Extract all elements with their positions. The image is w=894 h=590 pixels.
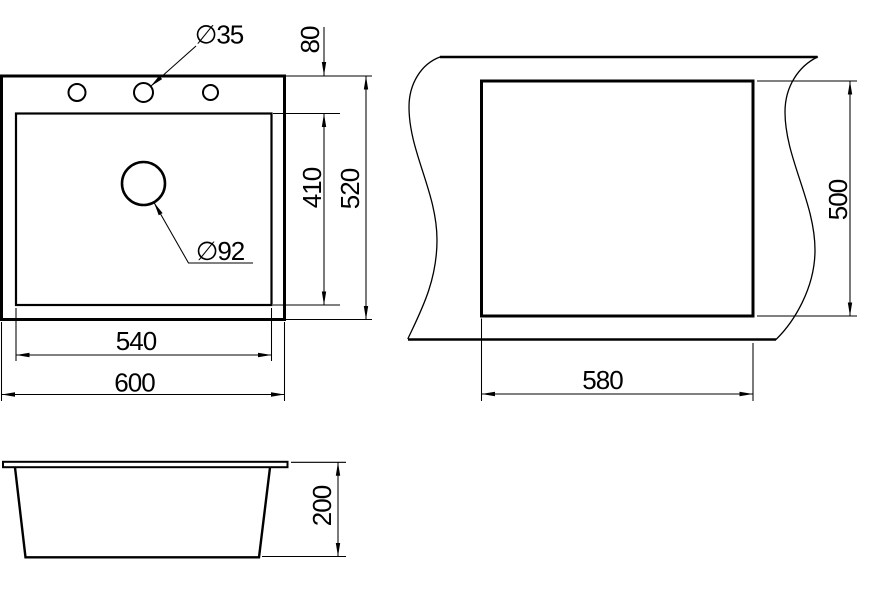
top-view	[2, 76, 285, 320]
sink-rim-profile	[3, 462, 288, 467]
tap-hole-right	[203, 85, 218, 100]
dim-label-600: 600	[114, 368, 155, 398]
side-view	[3, 462, 288, 558]
sink-body-profile	[15, 468, 270, 558]
dim-label-540: 540	[116, 326, 157, 356]
dim-label-drain-hole: ∅92	[196, 236, 245, 266]
extension-lines	[2, 76, 373, 401]
extension-lines	[482, 81, 858, 401]
dim-label-500: 500	[823, 179, 853, 220]
tap-hole-left	[69, 84, 86, 101]
dim-label-200: 200	[307, 485, 337, 526]
bowl-outline	[16, 114, 272, 306]
break-line-left	[408, 57, 440, 339]
dim-label-580: 580	[582, 365, 623, 395]
dim-label-410: 410	[297, 167, 327, 208]
dim-label-tap-hole: ∅35	[195, 20, 244, 50]
drawing-page: ∅35 ∅92 80 410 520 540 600 500 580	[0, 0, 894, 590]
tap-hole-center	[134, 83, 153, 102]
cutout-view-dimensions: 500 580	[482, 81, 858, 401]
break-line-right	[776, 57, 818, 340]
cutout-outline	[482, 81, 754, 316]
side-view-dimensions: 200	[262, 462, 346, 556]
cutout-view	[408, 57, 818, 340]
leader-line-tap-hole	[151, 46, 196, 86]
drain-hole	[122, 162, 165, 205]
technical-drawing: ∅35 ∅92 80 410 520 540 600 500 580	[0, 0, 894, 590]
dim-label-520: 520	[335, 168, 365, 209]
dim-label-80: 80	[295, 26, 325, 53]
